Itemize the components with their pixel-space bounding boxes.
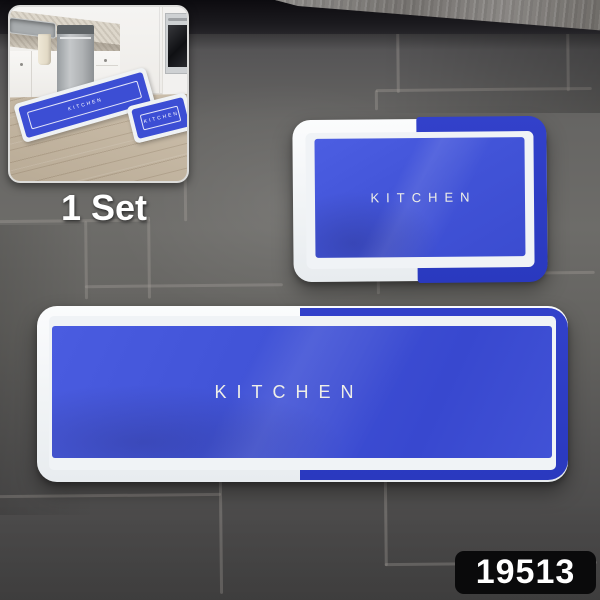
inset-dishwasher-handle	[60, 37, 91, 39]
inset-oven	[165, 13, 189, 74]
tile-grout-line	[376, 87, 592, 92]
inset-towel	[38, 34, 51, 65]
inset-cabinet-knob	[20, 63, 23, 66]
wood-ledge	[275, 0, 600, 33]
inset-cabinet-knob	[104, 59, 107, 62]
inset-dishwasher-controls	[57, 25, 94, 34]
inset-small-mat-text: KITCHEN	[131, 97, 189, 139]
mat-center-panel: KITCHEN	[52, 326, 552, 458]
large-kitchen-mat: KITCHEN	[37, 306, 568, 482]
tile-grout-line	[375, 90, 378, 110]
inset-oven-handle	[168, 18, 188, 21]
set-quantity-label: 1 Set	[28, 187, 180, 229]
tile-grout-line	[219, 472, 223, 594]
inset-wall-corner	[159, 7, 160, 102]
inset-drawer-line	[96, 65, 118, 66]
kitchen-text: KITCHEN	[214, 382, 363, 403]
small-kitchen-mat: KITCHEN	[292, 118, 547, 282]
sku-badge: 19513	[455, 551, 596, 594]
tile-grout-line	[85, 283, 283, 288]
tile-grout-line	[0, 493, 221, 498]
inset-lifestyle-photo: KITCHEN KITCHEN	[8, 5, 189, 183]
product-photo: KITCHEN KITCHEN 1 Set KITCHEN KITCHEN	[0, 0, 600, 600]
sku-number: 19513	[476, 553, 576, 592]
inset-oven-window	[168, 25, 188, 67]
kitchen-text: KITCHEN	[370, 190, 476, 206]
mat-center-panel: KITCHEN	[314, 137, 525, 258]
tile-grout-line	[384, 470, 388, 566]
